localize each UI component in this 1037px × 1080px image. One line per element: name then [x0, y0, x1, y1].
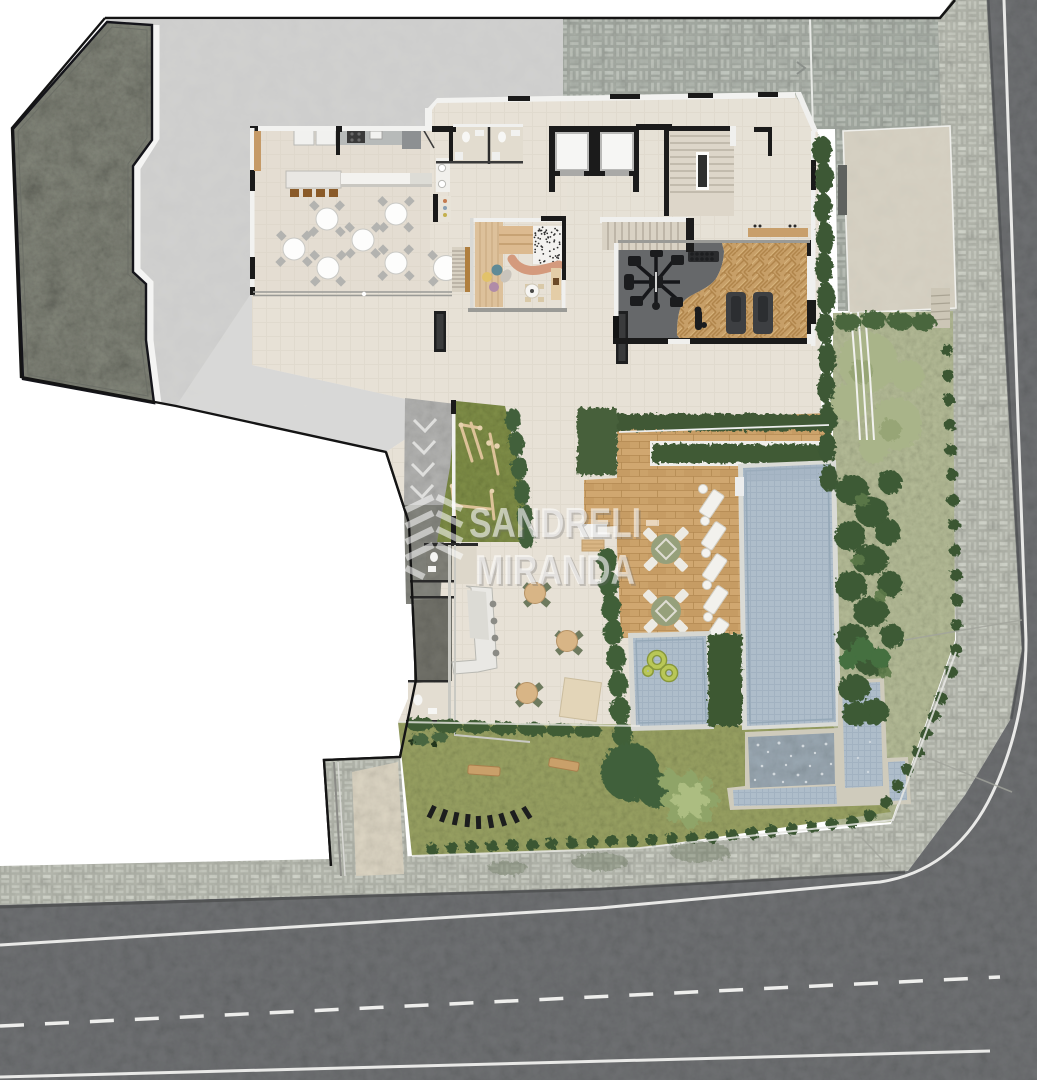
svg-text:MIRANDA: MIRANDA: [475, 546, 635, 593]
svg-text:SANDRELI: SANDRELI: [469, 499, 641, 546]
